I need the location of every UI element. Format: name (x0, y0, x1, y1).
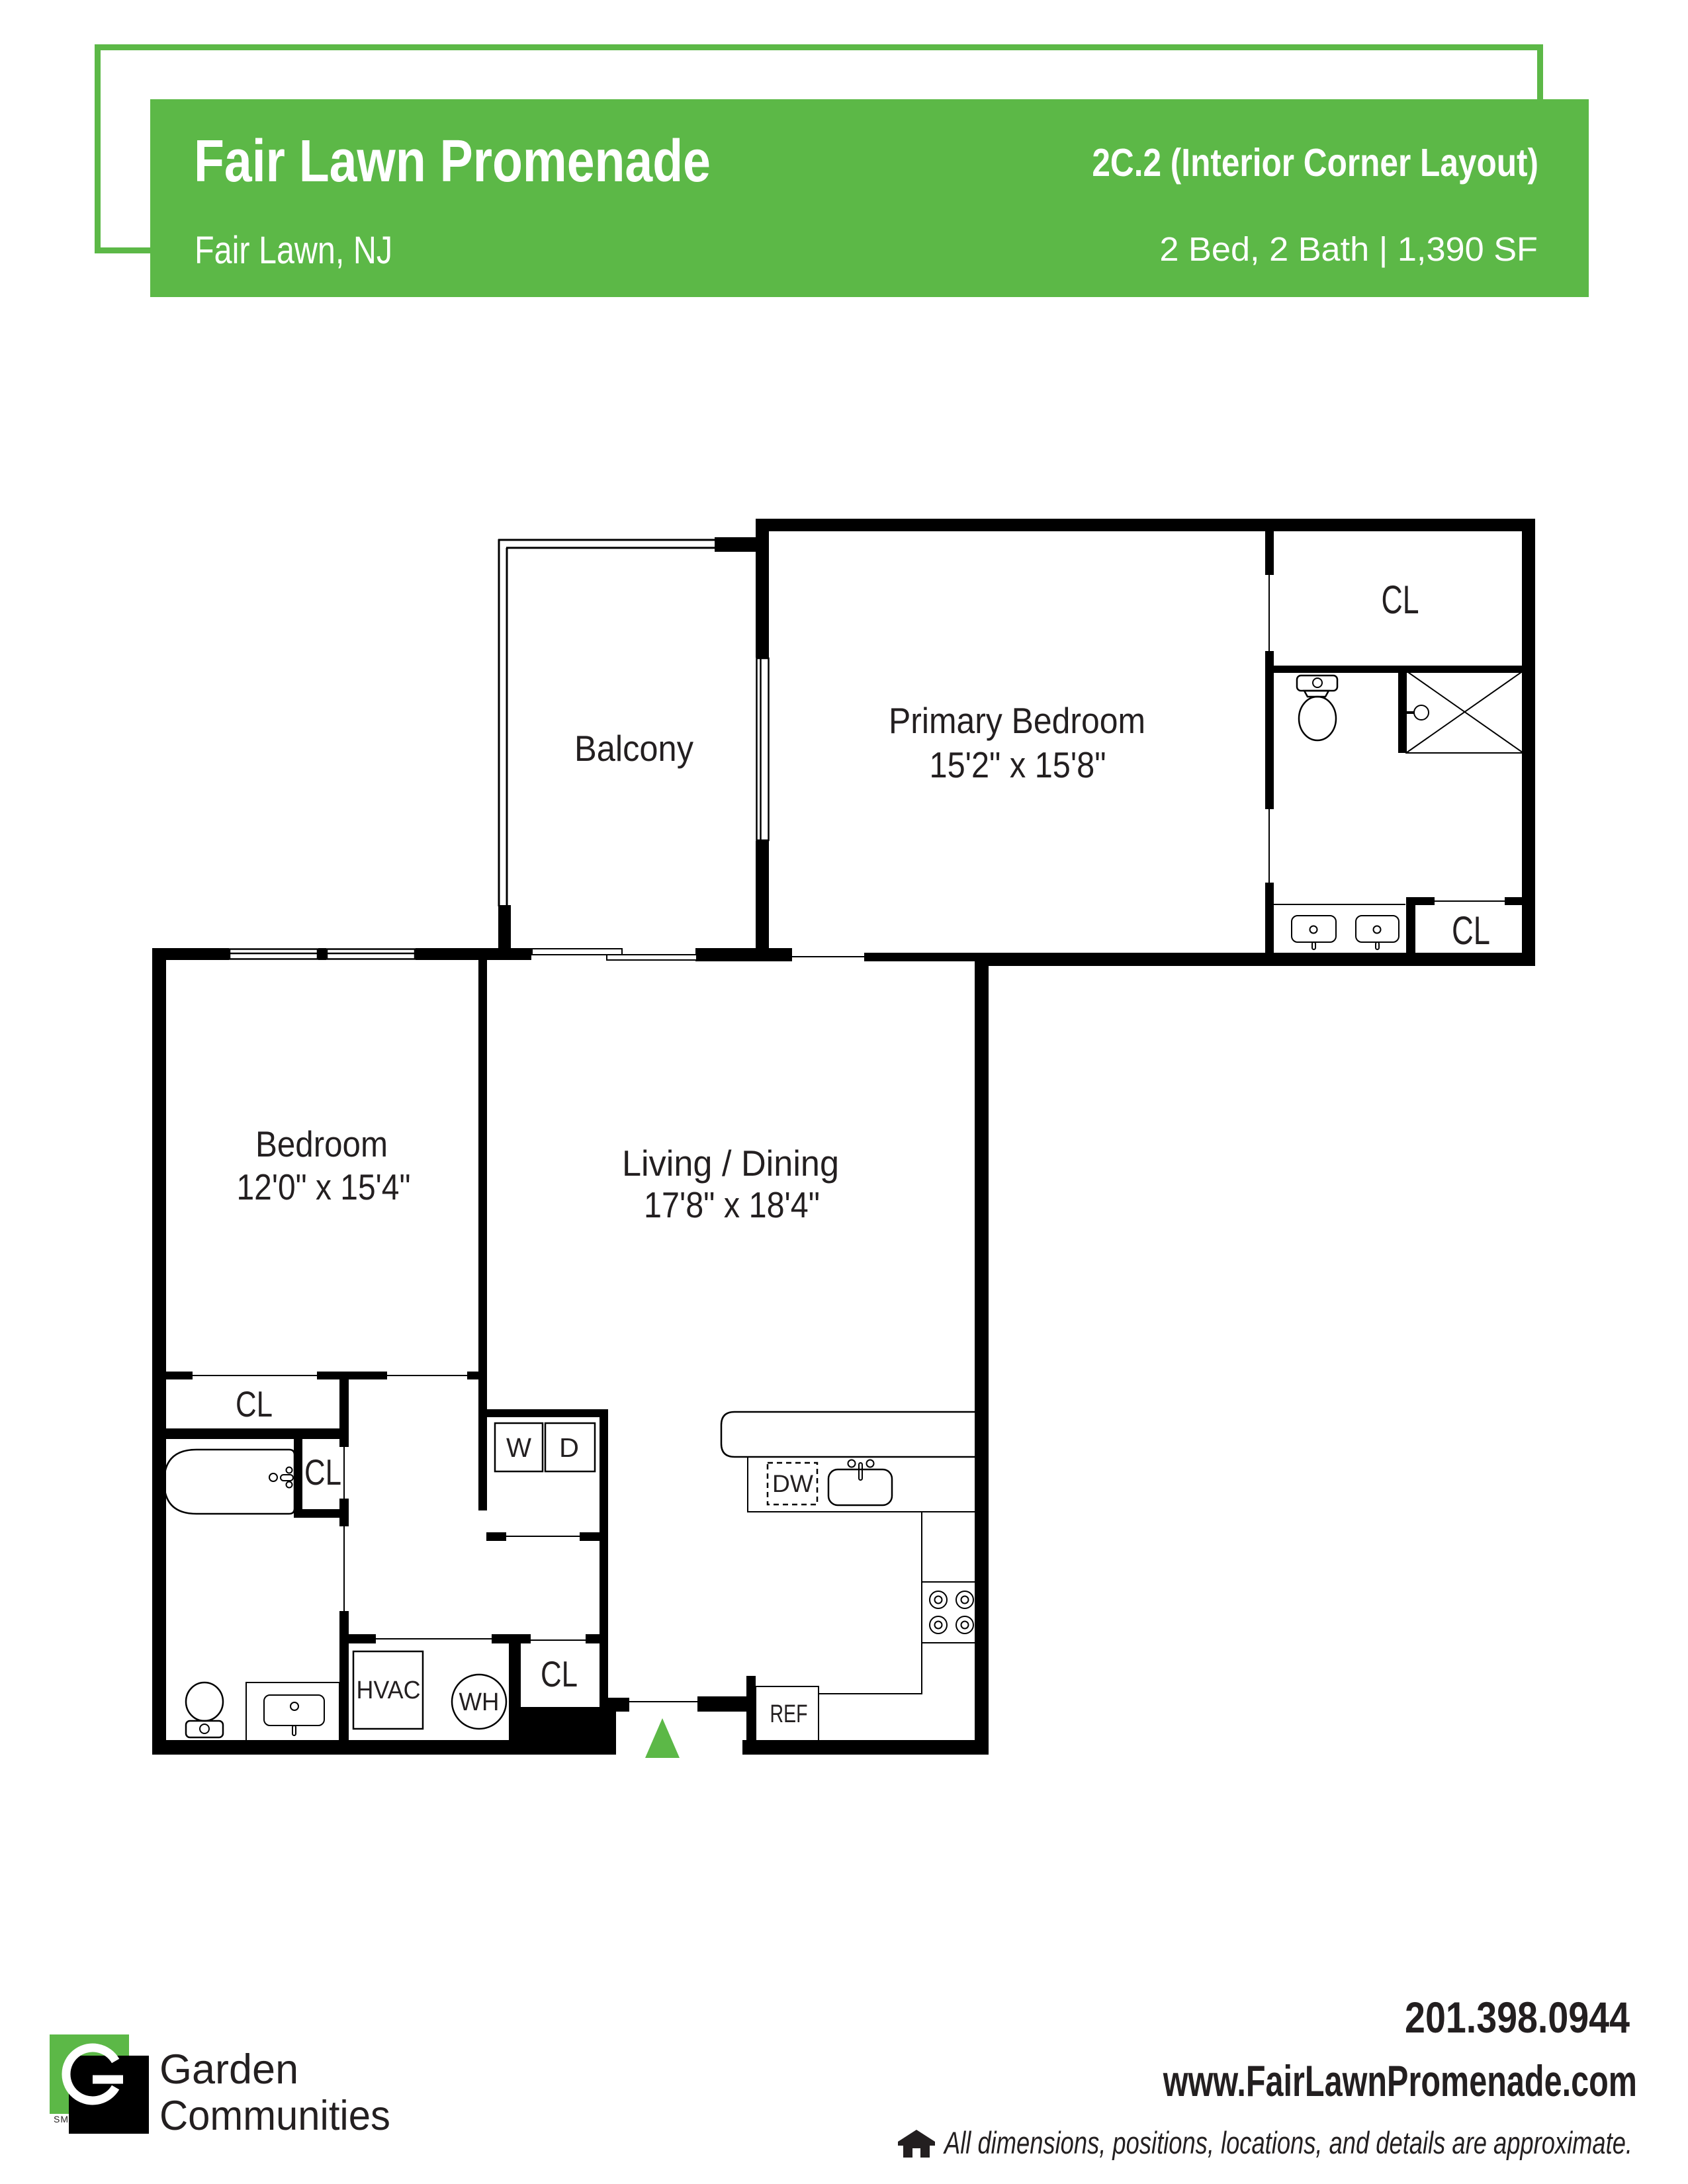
svg-text:CL: CL (304, 1452, 341, 1493)
svg-text:HVAC: HVAC (357, 1677, 421, 1704)
svg-text:W: W (506, 1432, 531, 1463)
svg-text:DW: DW (772, 1470, 813, 1497)
svg-text:CL: CL (1382, 578, 1419, 622)
svg-text:17'8" x 18'4": 17'8" x 18'4" (644, 1184, 820, 1225)
svg-text:WH: WH (459, 1688, 500, 1716)
svg-text:REF: REF (770, 1700, 808, 1728)
svg-text:CL: CL (1452, 908, 1490, 953)
svg-text:12'0" x 15'4": 12'0" x 15'4" (237, 1166, 411, 1207)
svg-text:Primary Bedroom: Primary Bedroom (889, 700, 1145, 741)
svg-text:CL: CL (236, 1383, 273, 1424)
svg-text:Balcony: Balcony (574, 728, 693, 769)
svg-text:Living / Dining: Living / Dining (622, 1143, 839, 1184)
svg-text:Bedroom: Bedroom (255, 1123, 388, 1164)
svg-text:CL: CL (541, 1653, 578, 1694)
svg-text:D: D (559, 1432, 579, 1463)
svg-text:15'2" x 15'8": 15'2" x 15'8" (930, 744, 1106, 785)
